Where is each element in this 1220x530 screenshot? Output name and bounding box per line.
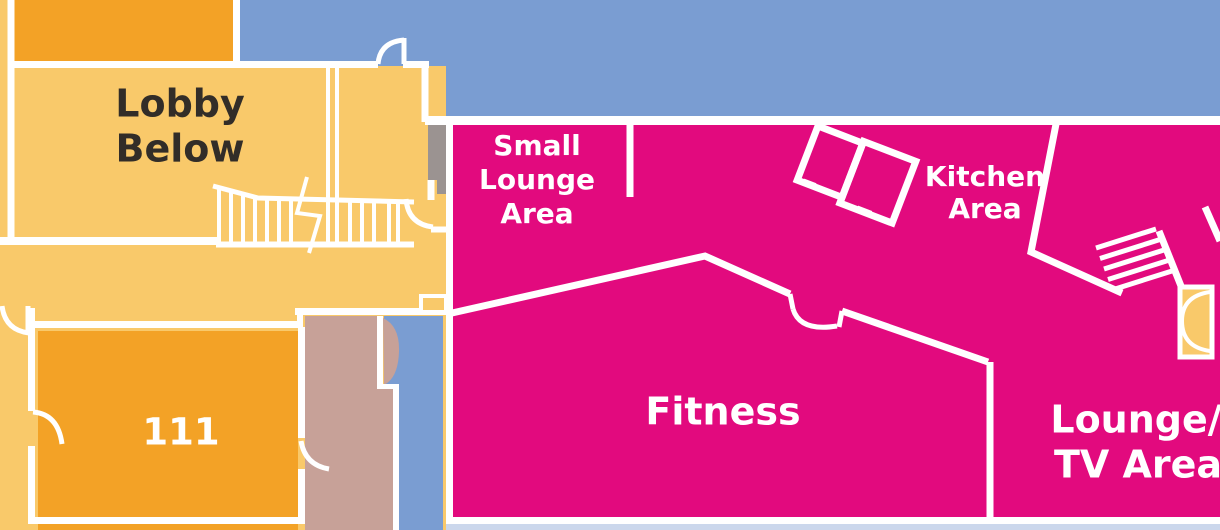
label-lounge-tv-line1: Lounge/ (1050, 398, 1220, 442)
room-111-lower-strip (38, 524, 298, 530)
bottom-walkway-strip (446, 524, 1220, 530)
label-room-111: 111 (142, 411, 219, 454)
label-lobby-line2: Below (116, 127, 245, 171)
right-double-door (1180, 287, 1212, 357)
upper-room-block (8, 0, 235, 62)
label-fitness: Fitness (645, 390, 800, 434)
floor-plan-canvas: Lobby Below 111 Small Lounge Area Kitche… (0, 0, 1220, 530)
label-lounge-tv-line2: TV Area (1054, 443, 1220, 487)
label-lobby-line1: Lobby (115, 82, 245, 126)
floor-plan: Lobby Below 111 Small Lounge Area Kitche… (0, 0, 1220, 530)
label-small-lounge-line3: Area (500, 197, 573, 230)
corridor-tab (421, 296, 446, 312)
label-kitchen-line1: Kitchen (925, 160, 1045, 193)
label-kitchen-line2: Area (948, 192, 1021, 225)
gray-fixture-step (437, 180, 446, 194)
gray-fixture (428, 122, 446, 180)
label-small-lounge-line1: Small (493, 129, 580, 162)
label-small-lounge-line2: Lounge (479, 163, 595, 196)
